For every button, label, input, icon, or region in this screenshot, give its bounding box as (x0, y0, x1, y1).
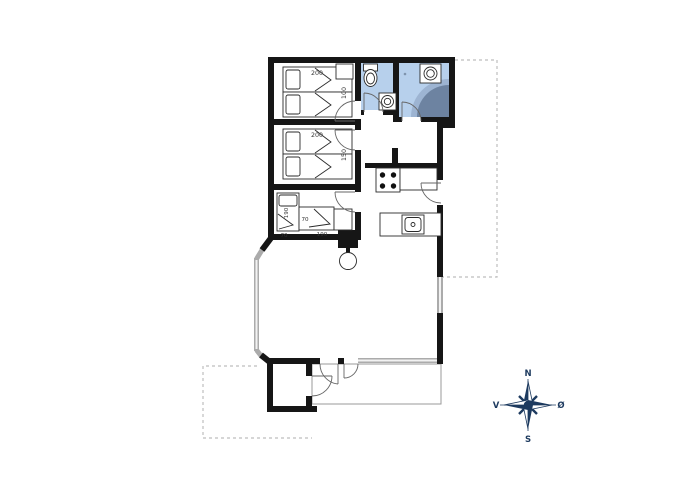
wall-hallway (355, 63, 361, 101)
wardrobe (334, 209, 352, 230)
bed-width-label: 70 (280, 233, 288, 239)
kitchen-counter (400, 168, 437, 190)
bed-width-label: 150 (341, 149, 348, 161)
wall-kitchen-stub (392, 148, 398, 163)
compass-label-east: Ø (557, 400, 564, 411)
wardrobe (336, 64, 353, 79)
wall-hallway (355, 150, 361, 192)
floor-drain-icon (404, 73, 407, 76)
burner-icon (380, 183, 385, 188)
bay-window-angled (257, 250, 263, 259)
wall-right (437, 122, 443, 180)
bedroom-1: 200 100 (283, 64, 353, 117)
fireplace (338, 230, 358, 248)
wall-left (268, 57, 274, 240)
compass-label-west: V (493, 401, 500, 411)
compass-rose: N S V Ø (493, 369, 565, 445)
burner-icon (391, 183, 396, 188)
wall-right-bath (449, 57, 455, 122)
compass-center (524, 401, 532, 409)
wall-bottom (338, 358, 344, 364)
wall-bedroom1-2 (274, 119, 361, 125)
pillow (279, 195, 297, 206)
pillow (286, 132, 300, 151)
wall-bedroom2-3 (274, 184, 361, 190)
bed-width-label: 100 (341, 87, 348, 99)
wall-corner (437, 356, 443, 364)
burner-icon (380, 172, 385, 177)
wall-annex-left (267, 358, 273, 412)
door-arc (344, 364, 358, 378)
kitchen (376, 168, 441, 236)
burner-icon (391, 172, 396, 177)
door-arc (312, 376, 332, 396)
bed-length-label: 190 (317, 232, 328, 238)
stove-icon (376, 168, 400, 192)
compass-label-north: N (524, 369, 531, 379)
floor-plan-drawing: 200 100 200 150 190 70 70 190 (0, 0, 700, 500)
wall-wc-south (383, 110, 399, 115)
bed-length-label: 200 (311, 70, 323, 77)
wall-bay-corner (262, 238, 271, 250)
door-arc (320, 364, 338, 384)
wall-annex-right (306, 364, 312, 376)
bed-length-label: 200 (311, 132, 323, 139)
bed-length-label: 190 (284, 207, 290, 218)
wood-stove-icon (340, 253, 357, 270)
wall-annex-bottom (267, 406, 317, 412)
terrace-outline-bottom (312, 364, 441, 404)
bed-width-label: 70 (301, 217, 309, 223)
bedroom-2: 200 150 (283, 129, 352, 179)
wall-annex-right (306, 396, 312, 406)
wall-hallway (355, 121, 361, 130)
pillow (286, 95, 300, 114)
wall-kitchen (365, 163, 438, 168)
window-core (256, 260, 258, 349)
pillow (286, 70, 300, 89)
window-core (358, 360, 437, 362)
window-core (439, 277, 441, 313)
terrace-dashed-outline-left (203, 366, 312, 438)
living-room (340, 248, 357, 270)
compass-label-south: S (525, 435, 531, 445)
pillow (286, 157, 300, 176)
wall-right (437, 313, 443, 358)
wall-bottom (267, 358, 320, 364)
wall-top (268, 57, 455, 63)
floor-plan-canvas: 200 100 200 150 190 70 70 190 (0, 0, 700, 500)
